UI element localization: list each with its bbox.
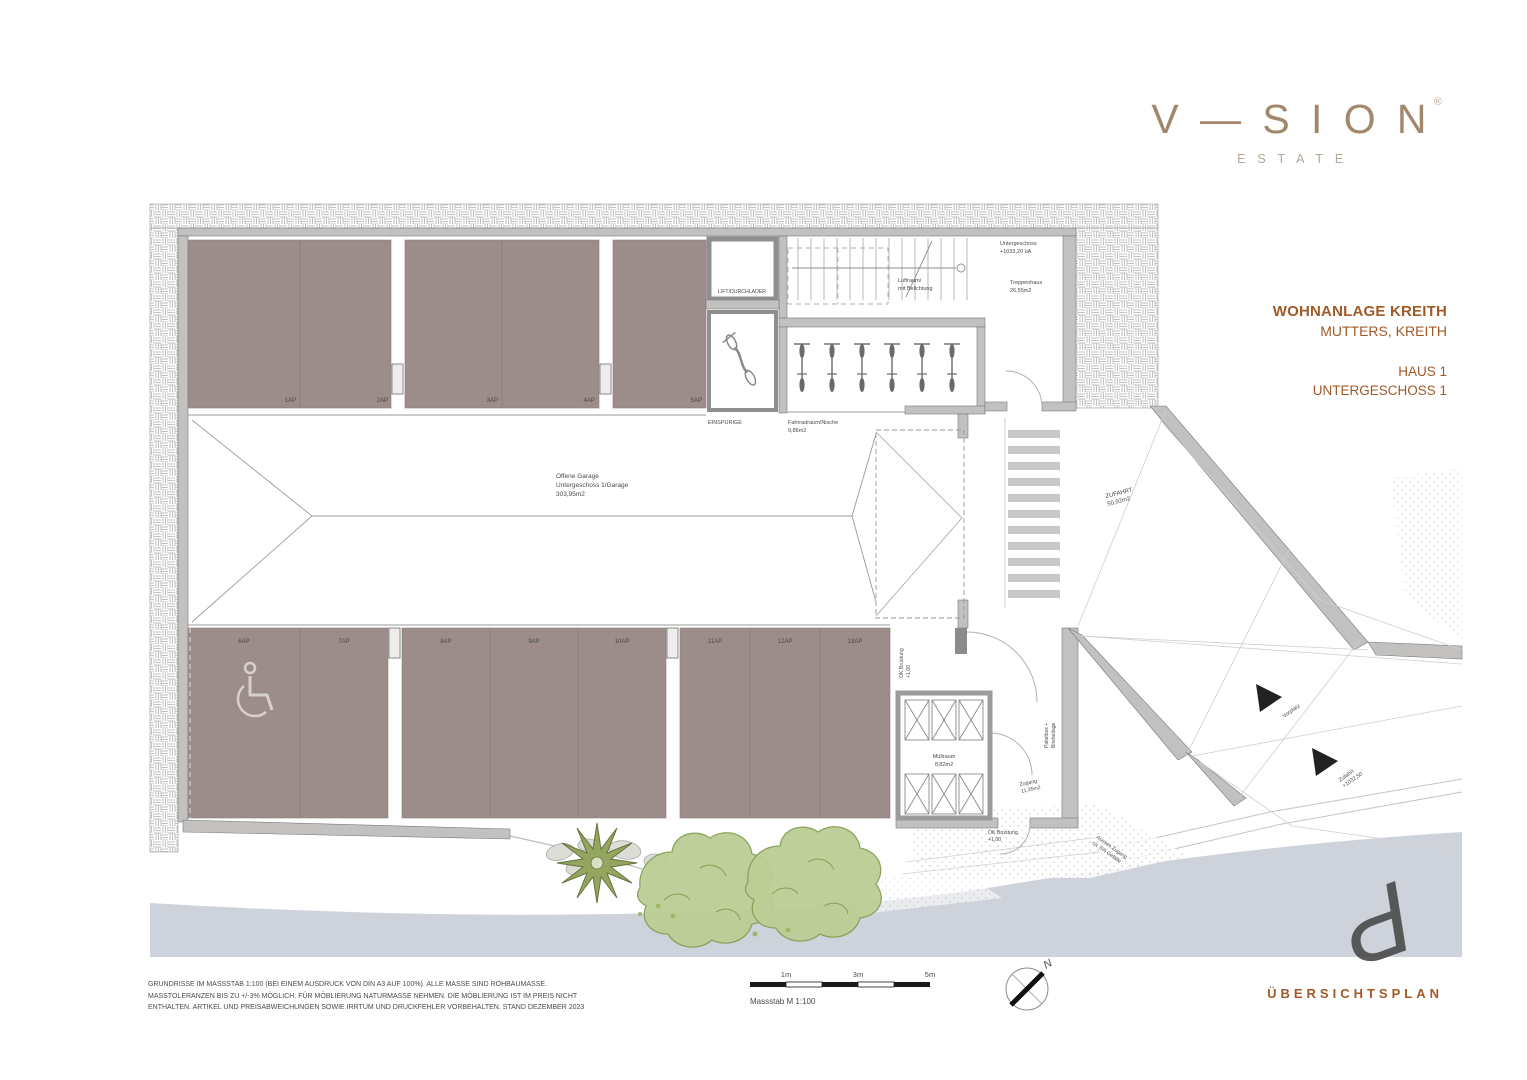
scale-bar: 1m 3m 5m Massstab M 1:100 xyxy=(750,970,935,1006)
fahrrad-label: 9,86m2 xyxy=(788,428,806,434)
compass-icon: N xyxy=(1006,957,1054,1010)
parking-label: 10AP xyxy=(615,639,630,645)
muellraum-label: 8,82m2 xyxy=(935,762,953,768)
zugang-label: Zugang 11,35m2 xyxy=(1019,778,1041,795)
ok-bruestung-label: OK Brüstung xyxy=(899,648,905,678)
luftraum-label: Luftraum/ xyxy=(898,278,922,284)
parking-label: 3AP xyxy=(487,398,498,404)
scale-tick: 3m xyxy=(853,970,863,979)
project-floor: UNTERGESCHOSS 1 xyxy=(1273,383,1447,398)
disclaimer-line: ENTHALTEN. ARTIKEL UND PREISABWEICHUNGEN… xyxy=(148,1002,628,1014)
parking-label: 2AP xyxy=(377,398,388,404)
zufahrt-arrow-label: Zufahrt +1032,50 xyxy=(1338,765,1364,789)
paketbox-label: Briefanlage xyxy=(1051,722,1057,748)
plan-type-label: ÜBERSICHTSPLAN xyxy=(1267,986,1443,1001)
parking-row-bottom: 6AP 7AP 8AP 9AP 10AP 11AP 12AP 13AP xyxy=(188,628,890,818)
brand-logo: V—SION® ESTATE xyxy=(1118,96,1463,166)
lift-room: LIFT/DURCHLADER xyxy=(706,239,779,309)
project-location: MUTTERS, KREITH xyxy=(1273,323,1447,339)
project-title: WOHNANLAGE KREITH xyxy=(1273,303,1447,320)
spiky-plant xyxy=(557,823,637,903)
parking-label: 1AP xyxy=(285,398,296,404)
project-building: HAUS 1 xyxy=(1273,364,1447,379)
paketbox-label: Paketbox + xyxy=(1044,723,1050,748)
luftraum-label: mit Belichtung xyxy=(898,286,933,292)
project-info-block: WOHNANLAGE KREITH MUTTERS, KREITH HAUS 1… xyxy=(1273,303,1447,398)
parking-row-top: 1AP 2AP 3AP 4AP 5AP xyxy=(188,240,706,408)
entry-ramp xyxy=(1008,430,1060,598)
parking-label: 9AP xyxy=(528,639,539,645)
svg-text:Untergeschoss 1/Garage: Untergeschoss 1/Garage xyxy=(556,482,629,489)
svg-text:303,95m2: 303,95m2 xyxy=(556,491,585,498)
stair-level-label: Untergeschoss xyxy=(1000,241,1037,247)
treppenhaus-label: Treppenhaus xyxy=(1010,280,1042,286)
scale-tick: 1m xyxy=(781,970,791,979)
parking-label: 8AP xyxy=(440,639,451,645)
ok-bruestung-label: +1,00 xyxy=(906,665,912,678)
einspurige-label: EINSPURIGE xyxy=(708,420,742,426)
ok-bruestung-label: +1,00 xyxy=(988,837,1001,843)
parking-label: 4AP xyxy=(584,398,595,404)
fahrrad-label: Fahrradraum/Nische xyxy=(788,420,838,426)
moto-room: EINSPURIGE xyxy=(708,312,776,426)
parking-label: 13AP xyxy=(848,639,863,645)
parking-label: 5AP xyxy=(691,398,702,404)
plan-sheet: 1AP 2AP 3AP 4AP 5AP 6AP 7AP 8AP 9AP xyxy=(0,0,1527,1080)
disclaimer-line: MASSTOLERANZEN BIS ZU +/-3% MÖGLICH. FÜR… xyxy=(148,991,628,1003)
garage-centre xyxy=(188,415,1005,625)
stair-level-label: +1033,20 üA xyxy=(1000,249,1032,255)
disclaimer-line: GRUNDRISSE IM MASSSTAB 1:100 (BEI EINEM … xyxy=(148,979,628,991)
svg-text:Offene Garage: Offene Garage xyxy=(556,473,599,480)
zufahrt-label: ZUFAHRT 50,92m2 xyxy=(1105,487,1135,507)
parking-label: 12AP xyxy=(778,639,793,645)
garage-label: Offene Garage Untergeschoss 1/Garage 303… xyxy=(556,473,629,498)
bike-room: Fahrradraum/Nische 9,86m2 xyxy=(787,344,960,434)
brand-registered-mark: ® xyxy=(1434,96,1442,108)
parking-label: 11AP xyxy=(708,639,722,645)
brand-logo-name: V—SION® xyxy=(1130,96,1463,143)
scale-tick: 5m xyxy=(925,970,935,979)
north-label: N xyxy=(1042,957,1055,971)
lift-label: LIFT/DURCHLADER xyxy=(718,289,766,295)
muellraum-label: Müllraum xyxy=(933,754,956,760)
brand-name: V—SION xyxy=(1151,96,1448,142)
treppenhaus-label: 26,55m2 xyxy=(1010,288,1031,294)
brand-logo-subtitle: ESTATE xyxy=(1129,152,1463,166)
parking-label: 7AP xyxy=(338,639,349,645)
disclaimer-block: GRUNDRISSE IM MASSSTAB 1:100 (BEI EINEM … xyxy=(148,979,628,1014)
scale-label: Massstab M 1:100 xyxy=(750,997,816,1006)
vorplatz-label: Vorplatz xyxy=(1282,703,1302,719)
ok-bruestung-label: OK Brüstung xyxy=(988,830,1018,836)
parking-label: 6AP xyxy=(238,639,249,645)
